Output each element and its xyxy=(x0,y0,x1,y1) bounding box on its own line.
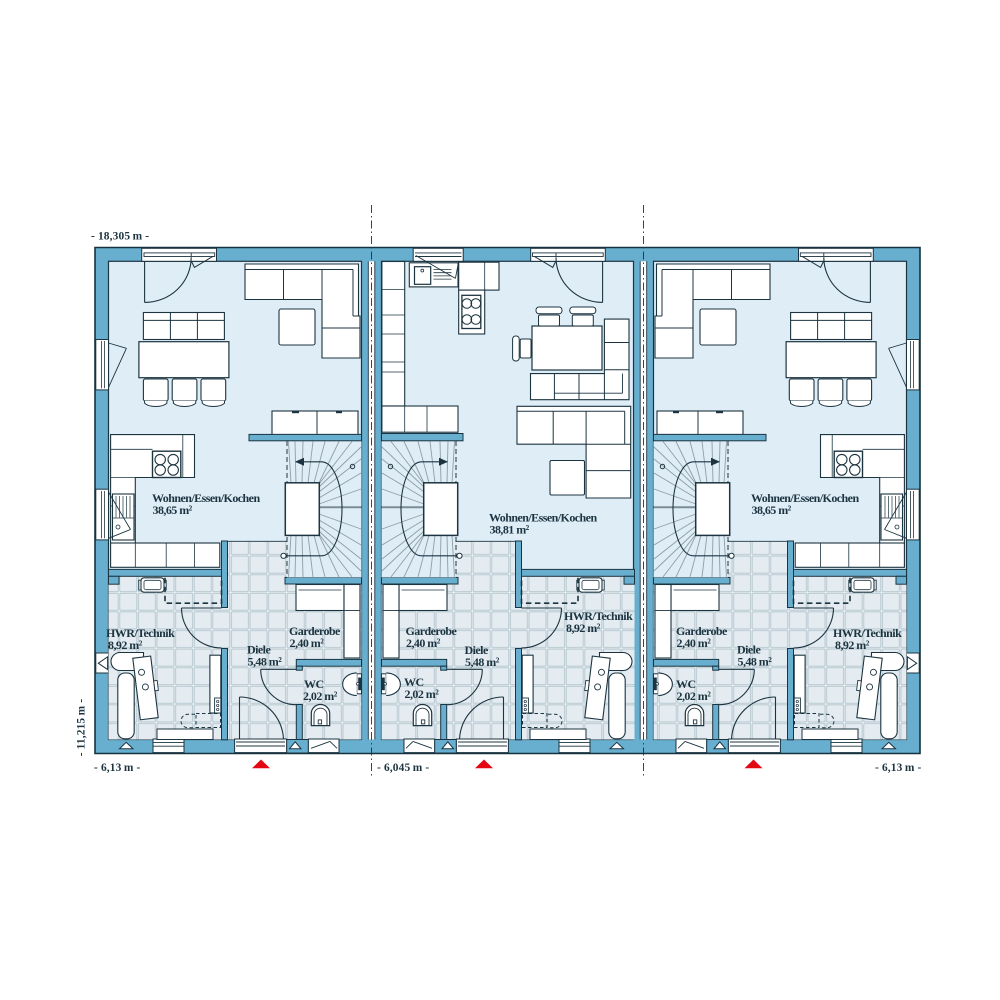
svg-text:2,40 m²: 2,40 m² xyxy=(677,636,712,650)
svg-text:38,65 m²: 38,65 m² xyxy=(153,503,193,517)
svg-text:- 6,045 m -: - 6,045 m - xyxy=(377,762,429,774)
svg-text:8,92 m²: 8,92 m² xyxy=(566,621,601,635)
svg-text:- 11,215 m -: - 11,215 m - xyxy=(76,699,88,757)
svg-text:2,02 m²: 2,02 m² xyxy=(405,687,440,701)
svg-text:38,65 m²: 38,65 m² xyxy=(752,503,792,517)
svg-text:5,48 m²: 5,48 m² xyxy=(248,655,283,669)
svg-text:- 18,305 m -: - 18,305 m - xyxy=(91,231,149,243)
svg-text:8,92 m²: 8,92 m² xyxy=(835,638,870,652)
svg-text:2,02 m²: 2,02 m² xyxy=(303,689,338,703)
svg-text:2,02 m²: 2,02 m² xyxy=(677,689,712,703)
svg-text:- 6,13 m -: - 6,13 m - xyxy=(94,762,141,774)
svg-text:5,48 m²: 5,48 m² xyxy=(738,655,773,669)
svg-text:2,40 m²: 2,40 m² xyxy=(406,636,441,650)
svg-text:8,92 m²: 8,92 m² xyxy=(108,638,143,652)
svg-text:- 6,13 m -: - 6,13 m - xyxy=(875,762,922,774)
svg-text:2,40 m²: 2,40 m² xyxy=(290,636,325,650)
svg-text:5,48 m²: 5,48 m² xyxy=(465,655,500,669)
svg-text:38,81 m²: 38,81 m² xyxy=(490,522,530,536)
